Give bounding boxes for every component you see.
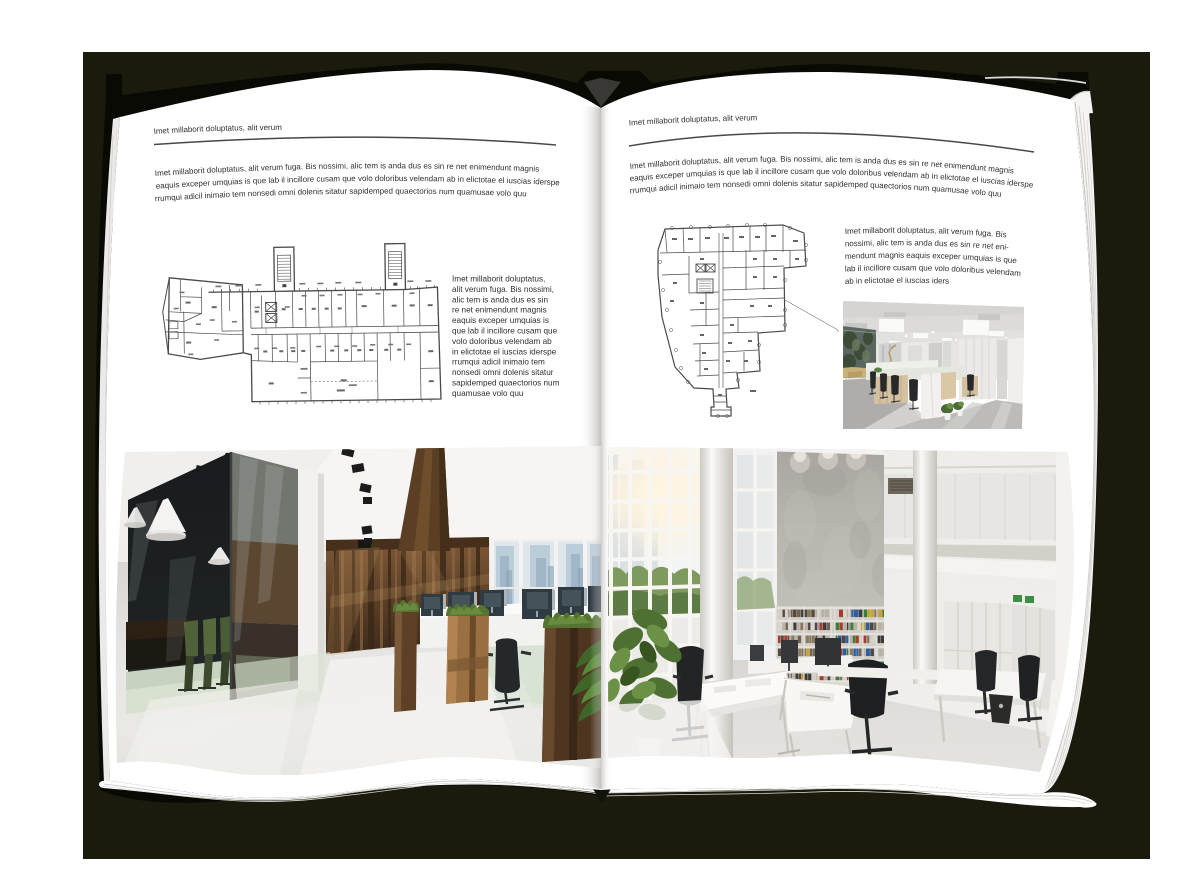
svg-text:Imet millaborit doluptatus,: Imet millaborit doluptatus, xyxy=(452,275,545,284)
svg-text:nonsedi omni dolenis sitatur: nonsedi omni dolenis sitatur xyxy=(452,368,554,377)
svg-text:alic tem is anda dus es sin: alic tem is anda dus es sin xyxy=(452,295,548,304)
svg-text:in elictotae el iuscias idersp: in elictotae el iuscias iderspe xyxy=(452,347,557,356)
svg-text:eaquis exceper umquias is: eaquis exceper umquias is xyxy=(452,316,549,325)
svg-text:volo doloribus velendam ab: volo doloribus velendam ab xyxy=(452,337,552,346)
svg-text:quamusae volo quu: quamusae volo quu xyxy=(452,389,524,398)
svg-text:sapidemped quaectorios num: sapidemped quaectorios num xyxy=(452,379,560,388)
svg-text:rrumqui adicil inimaio tem: rrumqui adicil inimaio tem xyxy=(452,358,545,367)
svg-text:alit verum fuga. Bis nossimi,: alit verum fuga. Bis nossimi, xyxy=(452,285,554,294)
svg-text:que lab il incillore cusam que: que lab il incillore cusam que xyxy=(452,327,558,336)
svg-text:ab in elictotae el iuscias ide: ab in elictotae el iuscias iders xyxy=(845,276,950,286)
svg-text:re net enimendunt magnis: re net enimendunt magnis xyxy=(452,306,547,315)
